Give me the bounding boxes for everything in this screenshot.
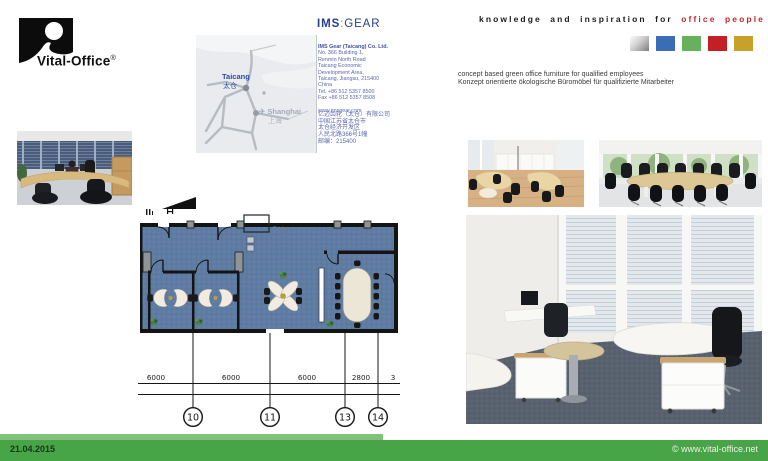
address-line-cn: 人民北路366号1幢 <box>318 132 410 139</box>
taicang-dot <box>243 85 249 91</box>
location-map: Taicang 太仓 ✈ Shanghai 上海 <box>196 35 317 153</box>
map-label-taicang: Taicang <box>222 72 250 81</box>
ims-logo-part1: IMS <box>317 18 340 30</box>
map-label-shanghai: ✈ Shanghai <box>259 107 301 116</box>
dimension-label: 6000 <box>147 373 166 382</box>
palette-square-blue <box>656 36 675 51</box>
small-town-dot <box>262 91 265 94</box>
footer-bar: 21.04.2015 © www.vital-office.net <box>0 440 768 461</box>
dimension-label: 3 <box>391 373 396 382</box>
plane-icon: ✈ <box>259 107 265 116</box>
tagline-black: knowledge and inspiration for <box>479 14 673 24</box>
concept-en: concept based green office furniture for… <box>458 71 674 79</box>
ims-gear-logo: IMS:GEAR <box>317 18 380 30</box>
plan-survey-marks <box>146 209 173 215</box>
photo-conference-room <box>599 140 762 207</box>
grid-bubble-label: 10 <box>187 413 199 424</box>
photo-team-office <box>468 140 584 207</box>
concept-statement: concept based green office furniture for… <box>458 71 674 87</box>
tagline-red: office people <box>681 14 765 24</box>
ims-logo-part2: GEAR <box>344 18 380 30</box>
brand-name: Vital-Office® <box>37 53 116 69</box>
grid-lines <box>138 333 400 407</box>
photo-office-large <box>466 215 762 424</box>
photo-executive-office <box>17 131 132 205</box>
conference-whiteboard <box>319 268 324 322</box>
footer-date: 21.04.2015 <box>10 444 55 454</box>
plan-north-wedge <box>162 197 196 209</box>
printer-unit <box>247 237 254 243</box>
dimension-label: 2800 <box>352 373 371 382</box>
palette-square-red <box>708 36 727 51</box>
address-english: IMS Gear (Taicang) Co. Ltd. No. 366 Buil… <box>318 44 410 114</box>
color-palette <box>630 36 753 51</box>
slide-page: Vital-Office® IMS:GEAR knowledge and ins… <box>0 0 768 461</box>
palette-square-silver <box>630 36 649 51</box>
dimension-label: 6000 <box>298 373 317 382</box>
floor-plan: Printer <box>138 196 400 432</box>
address-line: Fax +86 512 5357 8508 <box>318 95 410 101</box>
conference-table <box>343 268 371 322</box>
map-label-shanghai-cn: 上海 <box>268 116 282 126</box>
tagline: knowledge and inspiration for office peo… <box>479 14 765 24</box>
map-label-taicang-cn: 太仓 <box>223 81 237 91</box>
palette-square-green <box>682 36 701 51</box>
printer-label: Printer <box>273 226 289 232</box>
address-line-cn: 亿迈齿轮（太仓）有限公司 <box>318 112 410 119</box>
map-label-shanghai-text: Shanghai <box>267 107 301 116</box>
address-chinese: 亿迈齿轮（太仓）有限公司 中国江苏省太仓市 太仓经济开发区 人民北路366号1幢… <box>318 112 410 146</box>
grid-bubbles: 10 11 13 14 <box>184 408 388 427</box>
concept-de: Konzept orientierte ökologische Büromöbe… <box>458 79 674 87</box>
palette-square-gold <box>734 36 753 51</box>
registered-mark: ® <box>110 53 116 62</box>
grid-bubble-label: 14 <box>372 413 384 424</box>
address-line-cn: 邮编：215400 <box>318 139 410 146</box>
footer-site-url: © www.vital-office.net <box>672 444 758 454</box>
brand-name-text: Vital-Office <box>37 54 110 69</box>
dimension-label: 6000 <box>222 373 241 382</box>
map-graphic <box>196 35 316 153</box>
grid-bubble-label: 13 <box>339 413 351 424</box>
printer-unit <box>247 245 254 251</box>
grid-bubble-label: 11 <box>264 413 276 424</box>
ims-logo-separator: : <box>340 18 344 30</box>
